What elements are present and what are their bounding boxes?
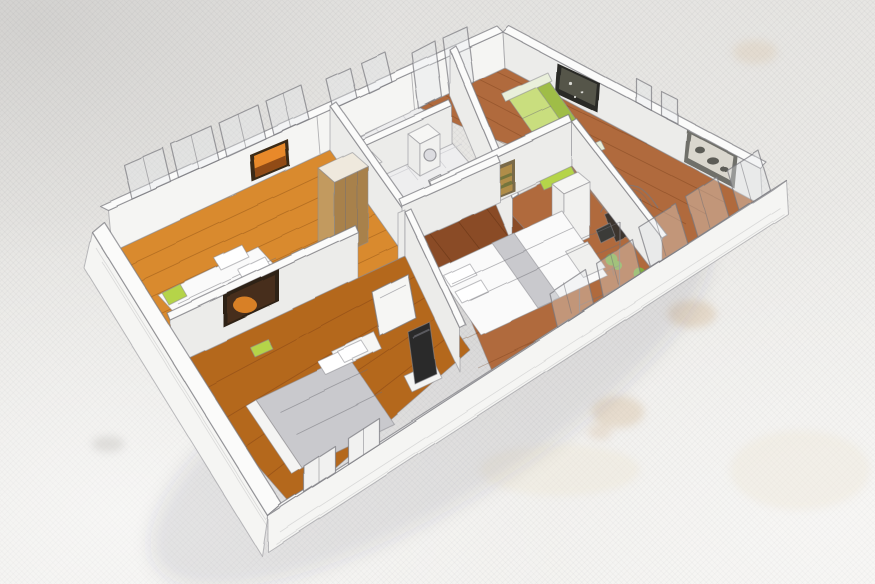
washing-machine <box>408 124 440 176</box>
speck <box>568 81 571 84</box>
map-blob <box>707 157 719 164</box>
stain <box>730 430 870 510</box>
wall-face <box>398 210 405 259</box>
speck <box>574 96 576 98</box>
floorplan-svg <box>0 0 875 584</box>
speck <box>581 91 584 94</box>
painting-sunset-glow <box>233 297 257 313</box>
stain <box>588 424 612 440</box>
map-blob <box>695 147 705 154</box>
stain <box>733 40 777 64</box>
pencil-smudge <box>92 436 124 452</box>
floorplan-rendering <box>0 0 875 584</box>
washer-door <box>424 149 436 161</box>
